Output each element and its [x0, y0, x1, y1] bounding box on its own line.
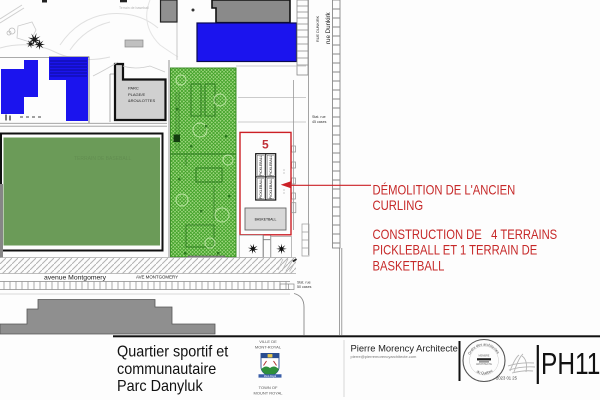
- svg-text:PICKLEBALL: PICKLEBALL: [269, 155, 273, 175]
- svg-text:CURLING: CURLING: [373, 198, 424, 213]
- svg-text:Parc Danyluk: Parc Danyluk: [117, 378, 203, 396]
- svg-text:pierre@pierremorencyarchitecte: pierre@pierremorencyarchitecte.com: [351, 354, 418, 359]
- svg-text:MONT-ROYAL: MONT-ROYAL: [255, 345, 282, 350]
- svg-text:Stat. rue: Stat. rue: [297, 281, 311, 285]
- svg-text:VILLE DE: VILLE DE: [259, 339, 277, 344]
- svg-text:Quartier sportif et: Quartier sportif et: [117, 343, 229, 361]
- svg-text:TOWN OF: TOWN OF: [259, 385, 278, 390]
- svg-text:Stat. rue: Stat. rue: [312, 115, 326, 119]
- svg-text:50 cases: 50 cases: [297, 285, 312, 289]
- svg-text:RUE DUNKIRK: RUE DUNKIRK: [316, 15, 320, 42]
- svg-text:TERRAIN DE BASEBALL: TERRAIN DE BASEBALL: [74, 156, 131, 162]
- svg-text:Terrain de baseball: Terrain de baseball: [119, 6, 149, 10]
- svg-text:PICKLEBALL: PICKLEBALL: [269, 179, 273, 199]
- svg-text:CONSTRUCTION DE 4 TERRAINS: CONSTRUCTION DE 4 TERRAINS: [373, 227, 558, 242]
- svg-text:ARCHITECTE: ARCHITECTE: [476, 363, 492, 366]
- svg-text:PARC: PARC: [128, 86, 139, 91]
- svg-text:AVE MONTGOMERY: AVE MONTGOMERY: [136, 275, 178, 280]
- svg-text:PICKLEBALL: PICKLEBALL: [259, 155, 263, 175]
- svg-text:avenue Montgomery: avenue Montgomery: [44, 275, 107, 282]
- svg-text:Pierre Morency Architecte: Pierre Morency Architecte: [351, 343, 458, 354]
- svg-text:BASKETBALL: BASKETBALL: [373, 259, 445, 274]
- svg-text:5: 5: [262, 138, 269, 152]
- svg-text:BASKETBALL: BASKETBALL: [255, 218, 277, 222]
- svg-text:2023 01 25: 2023 01 25: [496, 376, 518, 381]
- svg-text:PLAGE/E: PLAGE/E: [128, 92, 145, 97]
- svg-text:DÉMOLITION DE L'ANCIEN: DÉMOLITION DE L'ANCIEN: [373, 182, 516, 198]
- svg-text:MEMBRE: MEMBRE: [479, 355, 490, 358]
- svg-text:PH11: PH11: [541, 346, 600, 380]
- svg-text:&ROULOTTES: &ROULOTTES: [128, 98, 155, 103]
- svg-text:PICKLEBALL: PICKLEBALL: [259, 179, 263, 199]
- svg-text:45 cases: 45 cases: [312, 120, 327, 124]
- svg-text:communautaire: communautaire: [117, 360, 216, 378]
- svg-text:MOUNT ROYAL: MOUNT ROYAL: [254, 391, 284, 396]
- svg-text:PICKLEBALL ET 1 TERRAIN DE: PICKLEBALL ET 1 TERRAIN DE: [373, 243, 538, 258]
- svg-text:rue Dunkirk: rue Dunkirk: [325, 11, 332, 44]
- svg-text:Mont-Royal: Mont-Royal: [264, 375, 277, 378]
